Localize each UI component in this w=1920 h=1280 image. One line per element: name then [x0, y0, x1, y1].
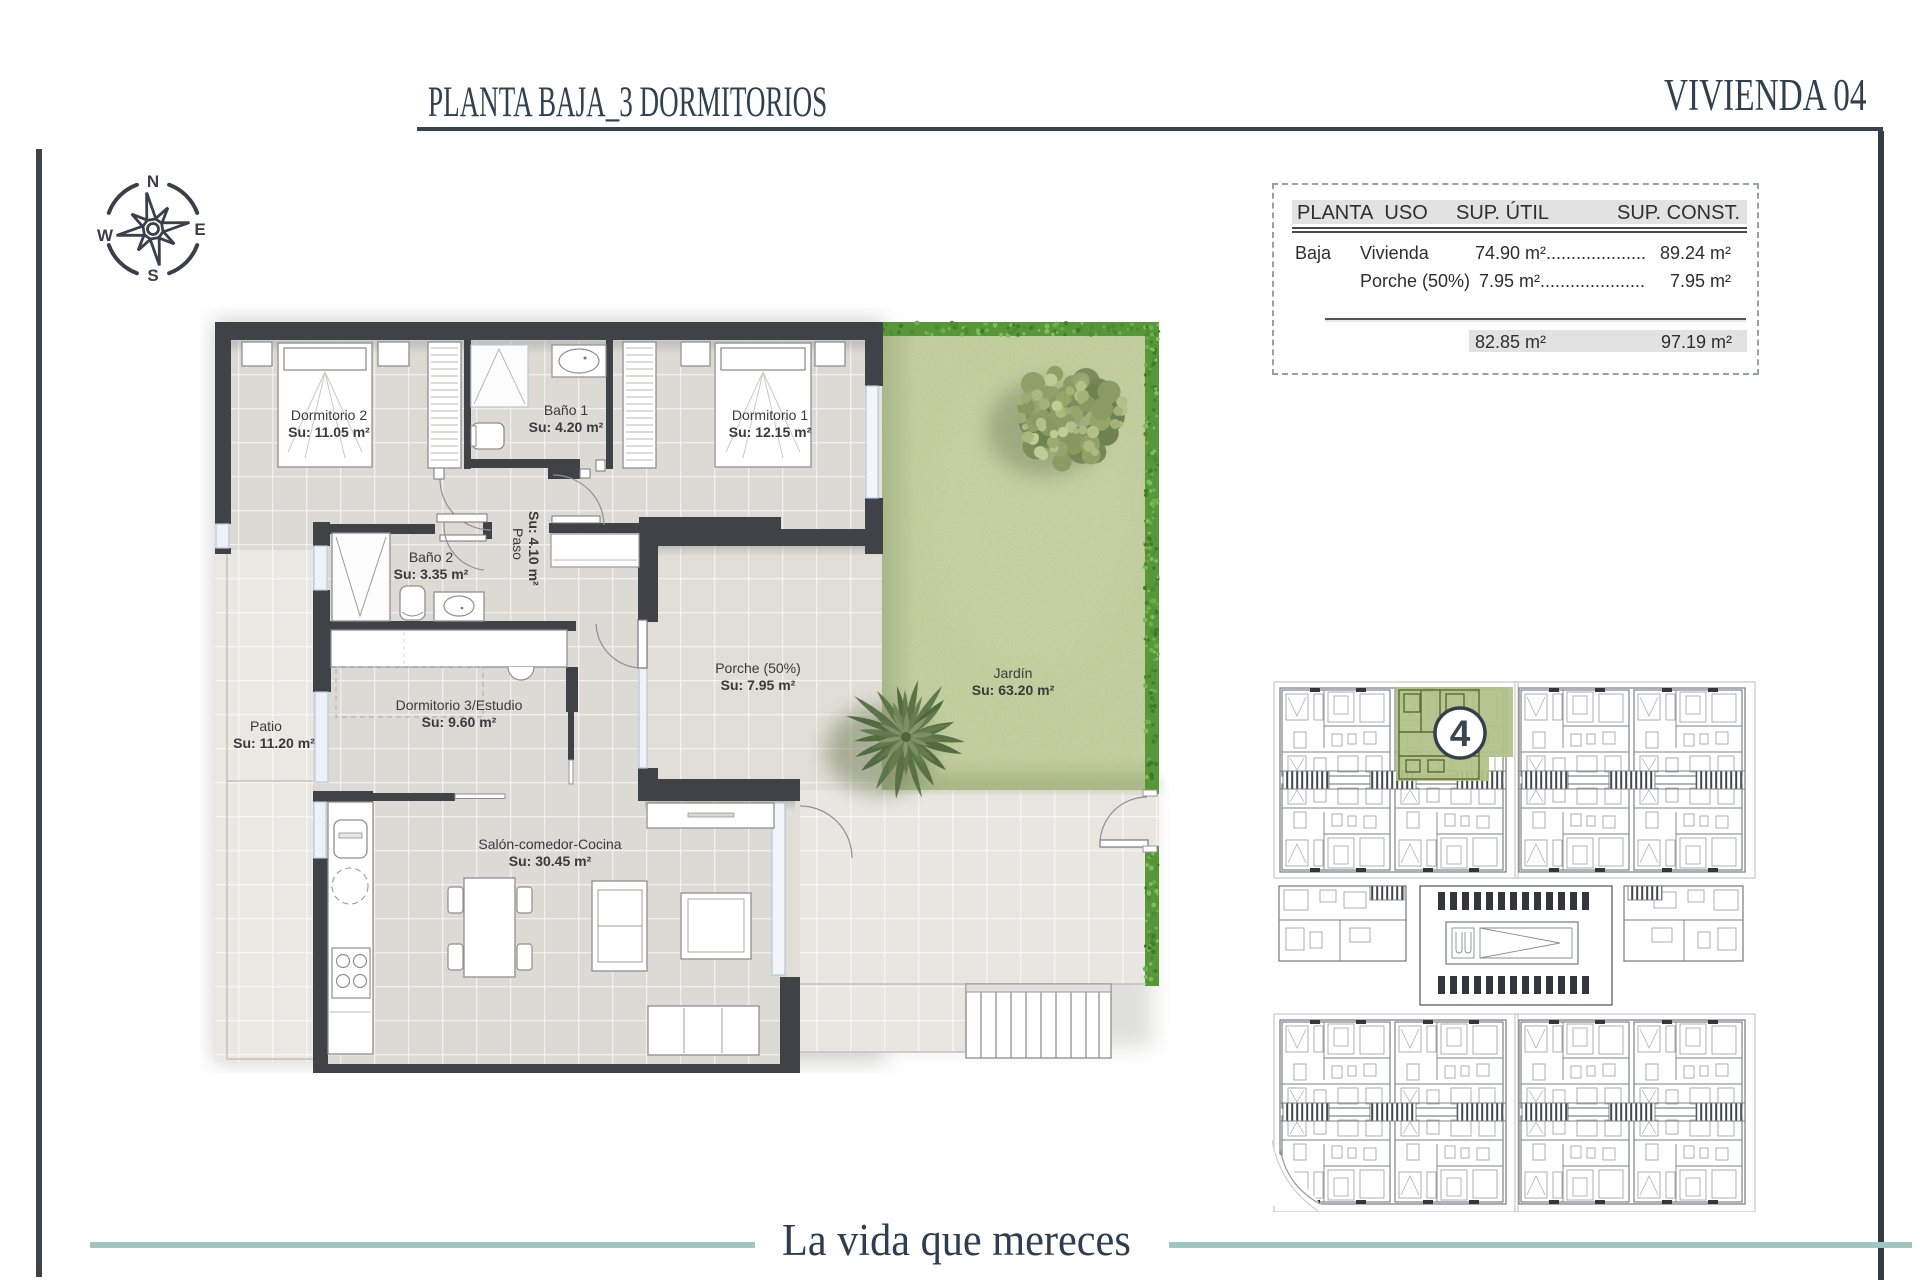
svg-text:Su: 11.05 m²: Su: 11.05 m²	[288, 424, 370, 440]
svg-text:Baño 1: Baño 1	[544, 402, 589, 418]
svg-text:Su: 30.45 m²: Su: 30.45 m²	[509, 853, 592, 869]
svg-text:E: E	[194, 220, 205, 239]
svg-text:Su: 7.95 m²: Su: 7.95 m²	[721, 677, 796, 693]
svg-text:S: S	[147, 266, 158, 285]
svg-text:Porche (50%): Porche (50%)	[715, 660, 801, 676]
svg-text:W: W	[97, 226, 114, 245]
svg-text:Dormitorio 2: Dormitorio 2	[291, 407, 367, 423]
svg-text:N: N	[147, 172, 159, 191]
svg-text:Su: 12.15 m²: Su: 12.15 m²	[729, 424, 812, 440]
svg-text:Dormitorio 3/Estudio: Dormitorio 3/Estudio	[396, 697, 523, 713]
svg-text:Su: 63.20 m²: Su: 63.20 m²	[972, 682, 1055, 698]
svg-text:Su: 4.20 m²: Su: 4.20 m²	[529, 419, 604, 435]
svg-text:Su: 11.20 m²: Su: 11.20 m²	[233, 735, 315, 751]
svg-text:Su: 4.10 m²: Su: 4.10 m²	[526, 511, 542, 586]
svg-text:4: 4	[1450, 713, 1471, 754]
svg-text:Baño 2: Baño 2	[409, 549, 454, 565]
svg-text:Salón-comedor-Cocina: Salón-comedor-Cocina	[478, 836, 621, 852]
svg-text:Jardín: Jardín	[994, 665, 1033, 681]
svg-text:Su: 3.35 m²: Su: 3.35 m²	[394, 566, 469, 582]
svg-text:Dormitorio 1: Dormitorio 1	[732, 407, 808, 423]
svg-text:Su: 9.60 m²: Su: 9.60 m²	[422, 714, 497, 730]
svg-text:Patio: Patio	[250, 718, 282, 734]
svg-text:Paso: Paso	[510, 528, 526, 560]
